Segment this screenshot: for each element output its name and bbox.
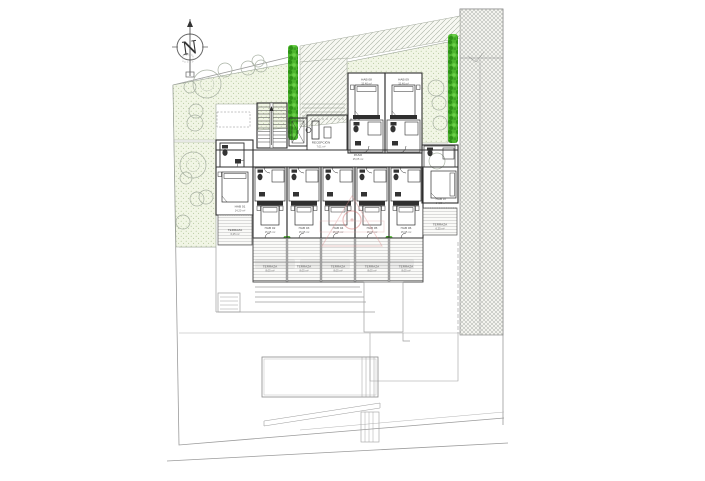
pool: [262, 357, 378, 397]
ramp: [264, 403, 380, 426]
corridor-label: PASO: [354, 153, 363, 157]
garden-right: [347, 42, 448, 143]
lower-steps: [361, 412, 379, 442]
side-terrace-right-area: 6,25 m²: [435, 227, 444, 231]
floor-plan-canvas: RECEPCIÓN 7,01 m² HAB 08 1: [0, 0, 705, 481]
left-room-label: HAB 01: [235, 205, 246, 209]
bottom-room-2-label: HAB 03: [299, 226, 310, 230]
terrace-1-area: 8,05 m²: [265, 269, 274, 273]
bottom-room-5-label: HAB 06: [401, 226, 412, 230]
right-room-label: HAB 07: [436, 197, 447, 201]
bottom-room-2-area: 15,05 m²: [299, 230, 310, 234]
reception-label: RECEPCIÓN: [312, 140, 330, 145]
neighbour-plot-hatched: [460, 9, 503, 335]
canopy-dashed-outline: [217, 112, 250, 127]
reception-area: 7,01 m²: [316, 145, 325, 149]
top-room-2-area: 15,40 m²: [398, 82, 409, 86]
bottom-room-1-area: 15,05 m²: [265, 230, 276, 234]
right-room-area: 14,20 m²: [436, 201, 447, 205]
top-room-1-area: 15,40 m²: [361, 82, 372, 86]
bottom-room-5-area: 15,05 m²: [401, 230, 412, 234]
bottom-room-1-label: HAB 02: [265, 226, 276, 230]
watermark-text-bars: [255, 259, 414, 269]
hedge-top-right: [448, 34, 458, 143]
side-terrace-right-label: TERRAZA: [433, 223, 448, 227]
side-terrace-right: [423, 208, 457, 235]
terrace-4-area: 8,05 m²: [367, 269, 376, 273]
side-terrace-left-label: TERRAZA: [228, 228, 243, 232]
top-room-2-label: HAB 09: [398, 78, 409, 82]
site-plan-drawing: RECEPCIÓN 7,01 m² HAB 08 1: [0, 0, 705, 481]
terrace-2-area: 8,05 m²: [299, 269, 308, 273]
terrace-5-area: 8,05 m²: [401, 269, 410, 273]
north-letter: N: [181, 37, 200, 60]
north-arrow: N: [172, 19, 208, 77]
side-terrace-left-area: 6,25 m²: [230, 232, 239, 236]
top-room-1-label: HAB 08: [361, 78, 372, 82]
bathroom-left-corridor: [220, 143, 244, 167]
corridor-area: 25,05 m²: [353, 157, 364, 161]
garden-lower-left: [174, 142, 216, 247]
left-room-area: 14,20 m²: [235, 209, 246, 213]
terrace-3-area: 8,05 m²: [333, 269, 342, 273]
